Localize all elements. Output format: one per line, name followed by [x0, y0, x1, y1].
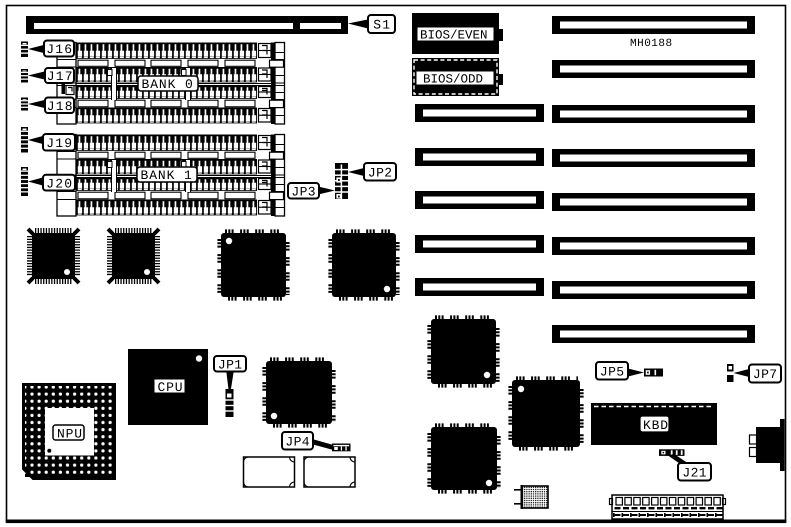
- svg-text:KBD: KBD: [643, 418, 669, 433]
- svg-text:MH0188: MH0188: [630, 38, 673, 50]
- svg-text:JP1: JP1: [218, 357, 243, 372]
- svg-text:J20: J20: [46, 176, 73, 191]
- svg-text:CPU: CPU: [158, 380, 184, 395]
- svg-text:BANK 1: BANK 1: [141, 168, 193, 183]
- svg-text:J21: J21: [682, 465, 707, 480]
- svg-text:JP5: JP5: [600, 364, 625, 379]
- svg-text:JP4: JP4: [285, 434, 310, 449]
- svg-text:BANK 0: BANK 0: [142, 77, 194, 92]
- svg-text:J17: J17: [47, 69, 74, 84]
- svg-text:BIOS/EVEN: BIOS/EVEN: [420, 29, 488, 43]
- svg-text:J18: J18: [47, 99, 74, 114]
- svg-text:S1: S1: [373, 18, 391, 33]
- svg-text:J16: J16: [46, 42, 73, 57]
- svg-text:JP3: JP3: [291, 184, 316, 199]
- svg-text:BIOS/ODD: BIOS/ODD: [423, 73, 483, 87]
- svg-text:J19: J19: [46, 136, 73, 151]
- svg-text:JP2: JP2: [368, 165, 393, 180]
- svg-text:JP7: JP7: [753, 367, 778, 382]
- svg-text:NPU: NPU: [57, 427, 83, 442]
